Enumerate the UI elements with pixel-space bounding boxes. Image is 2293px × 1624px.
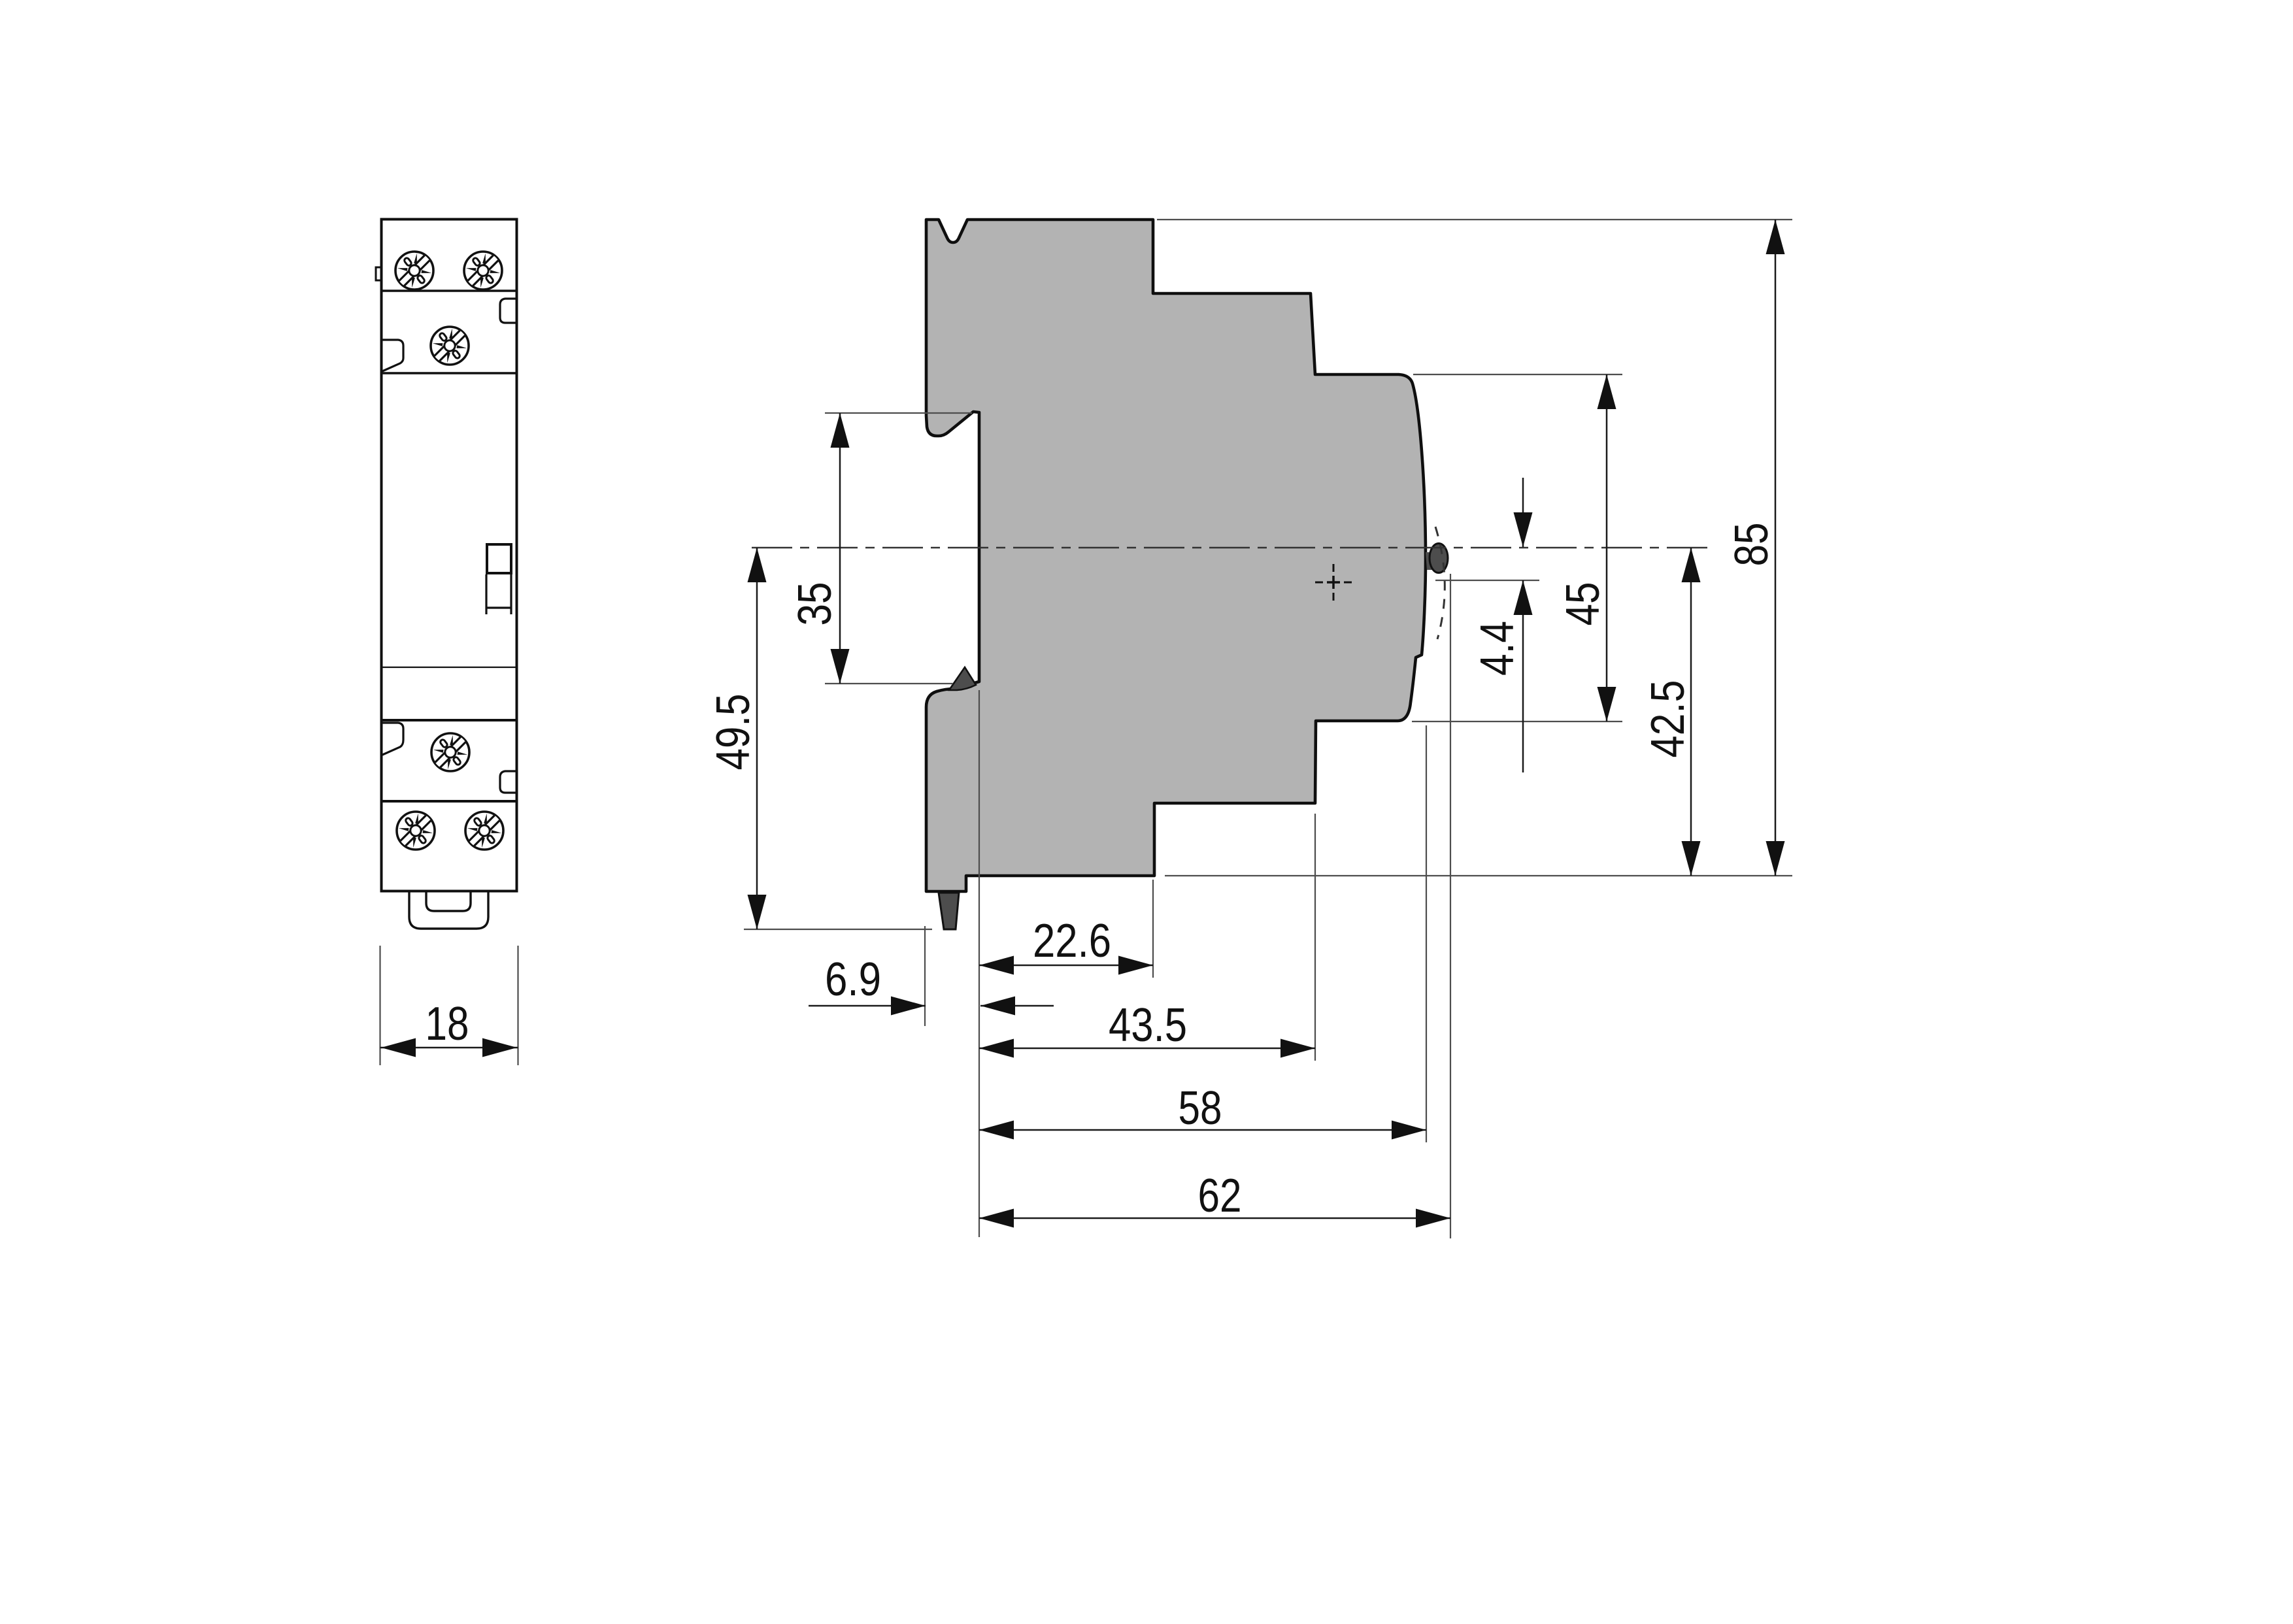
svg-text:45: 45 — [1557, 582, 1609, 626]
svg-text:6.9: 6.9 — [825, 953, 881, 1006]
svg-text:18: 18 — [426, 998, 469, 1050]
svg-text:43.5: 43.5 — [1109, 999, 1187, 1052]
svg-text:35: 35 — [789, 582, 841, 626]
svg-text:85: 85 — [1726, 523, 1778, 567]
svg-text:58: 58 — [1179, 1082, 1222, 1135]
svg-text:42.5: 42.5 — [1642, 680, 1694, 758]
svg-text:4.4: 4.4 — [1471, 621, 1524, 676]
svg-text:49.5: 49.5 — [707, 694, 760, 771]
svg-text:22.6: 22.6 — [1033, 915, 1111, 967]
svg-text:62: 62 — [1198, 1170, 1242, 1222]
